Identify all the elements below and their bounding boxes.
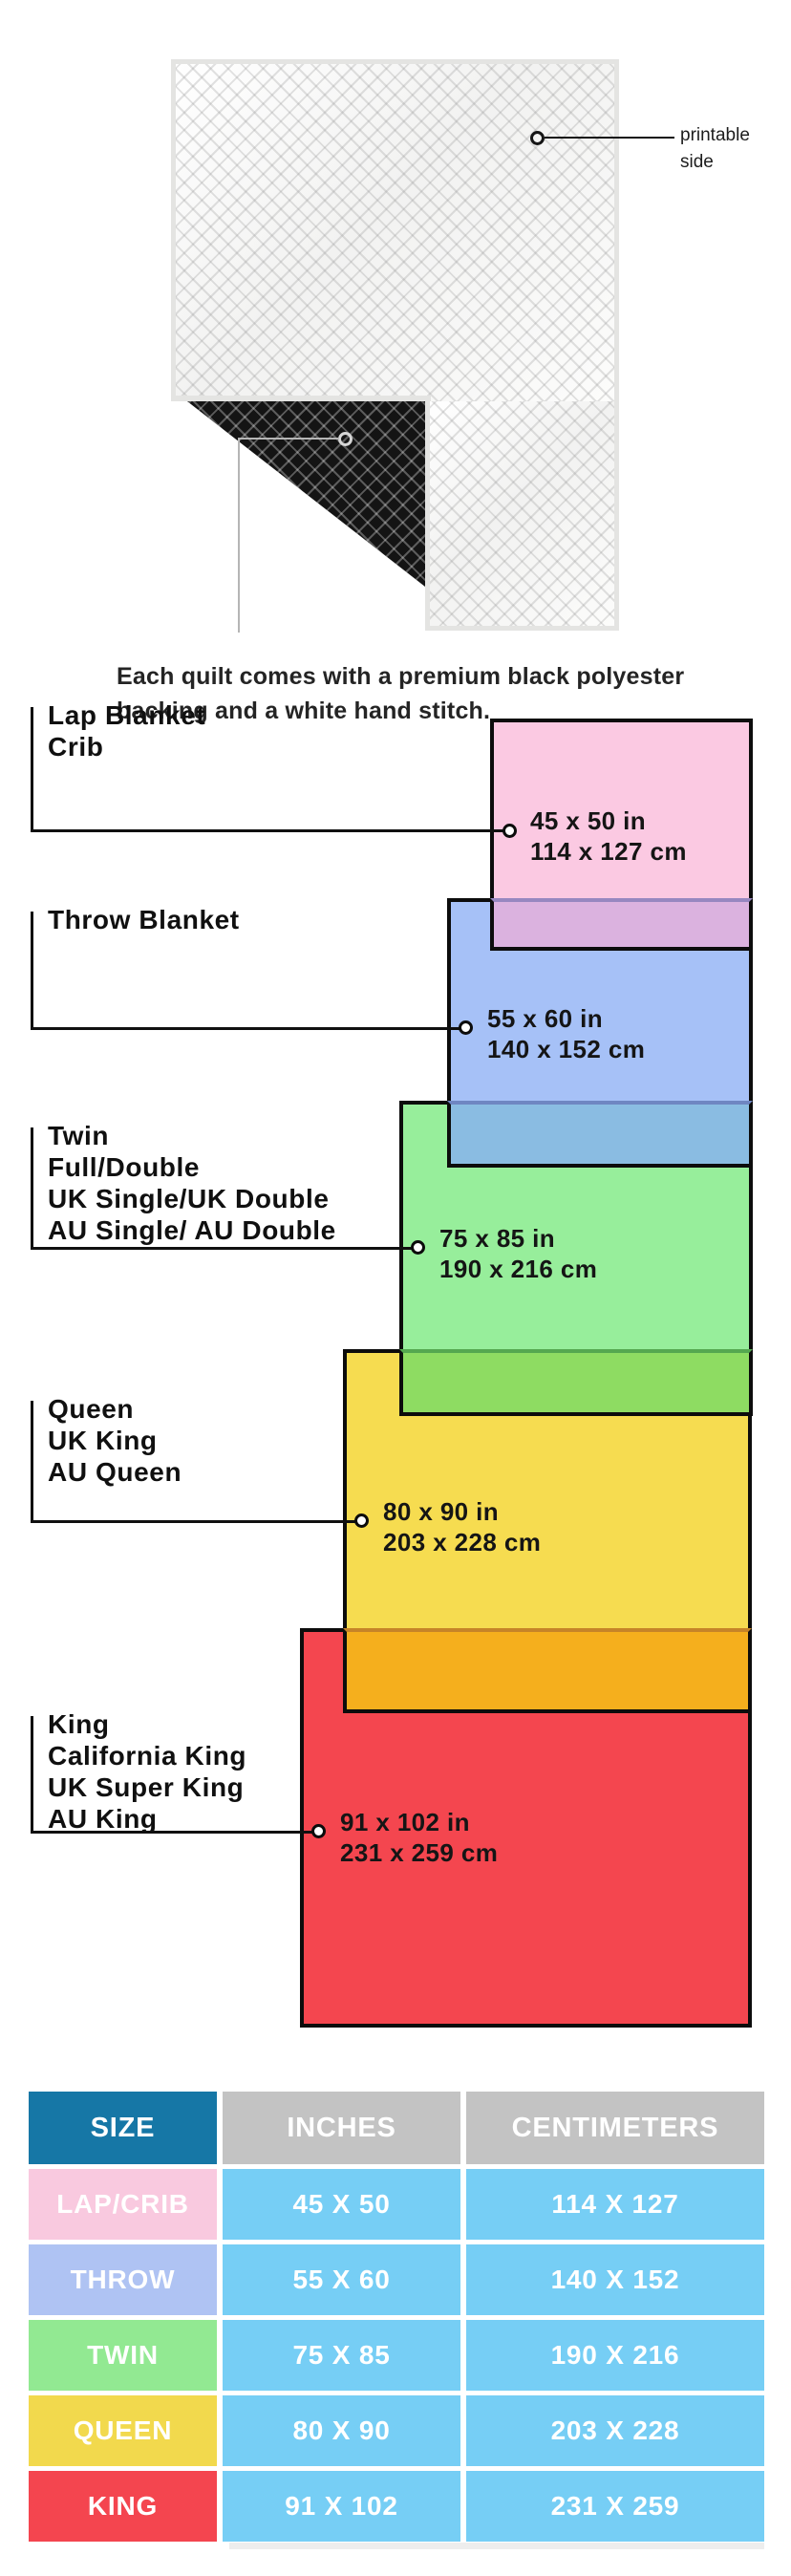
size-text-twin-in: 75 x 85 in — [439, 1223, 597, 1254]
table-row-king: KING 91 X 102 231 X 259 — [29, 2471, 764, 2542]
table-row-queen: QUEEN 80 X 90 203 X 228 — [29, 2395, 764, 2466]
printable-side-callout-line — [545, 137, 674, 139]
table-cell-cm: 114 X 127 — [466, 2169, 764, 2240]
table-cell-inches: 80 X 90 — [223, 2395, 460, 2466]
label-throw-line1: Throw Blanket — [48, 904, 240, 935]
table-cell-size: KING — [29, 2471, 217, 2542]
table-cell-size: QUEEN — [29, 2395, 217, 2466]
overlap-throw-twin — [447, 1101, 753, 1168]
size-text-twin-cm: 190 x 216 cm — [439, 1254, 597, 1284]
printable-side-marker-icon — [530, 131, 545, 145]
table-header-size: SIZE — [29, 2092, 217, 2164]
backing-caption-line1: Each quilt comes with a premium black po… — [117, 659, 684, 694]
size-text-throw-cm: 140 x 152 cm — [487, 1034, 645, 1064]
table-cell-size: THROW — [29, 2244, 217, 2315]
size-text-queen: 80 x 90 in 203 x 228 cm — [383, 1496, 541, 1557]
guide-line-king-h — [31, 1831, 313, 1834]
overlap-twin-queen — [399, 1349, 753, 1416]
table-header-inches: INCHES — [223, 2092, 460, 2164]
size-text-king-in: 91 x 102 in — [340, 1807, 498, 1837]
size-text-queen-cm: 203 x 228 cm — [383, 1527, 541, 1557]
quilt-printable-side-fabric — [171, 59, 619, 401]
label-king-line2: California King — [48, 1740, 246, 1771]
size-text-lap-cm: 114 x 127 cm — [530, 836, 687, 867]
label-queen-line3: AU Queen — [48, 1456, 182, 1488]
label-king-line3: UK Super King — [48, 1771, 246, 1803]
label-king-line1: King — [48, 1708, 246, 1740]
printable-side-label: printable side — [680, 122, 750, 176]
guide-line-throw-v — [31, 912, 33, 1030]
table-cell-cm: 140 X 152 — [466, 2244, 764, 2315]
table-row-lap-crib: LAP/CRIB 45 X 50 114 X 127 — [29, 2169, 764, 2240]
table-header-row: SIZE INCHES CENTIMETERS — [29, 2092, 764, 2164]
table-header-centimeters: CENTIMETERS — [466, 2092, 764, 2164]
label-twin-line3: UK Single/UK Double — [48, 1183, 336, 1214]
guide-line-throw-h — [31, 1027, 460, 1030]
label-twin-line2: Full/Double — [48, 1151, 336, 1183]
printable-side-label-line2: side — [680, 149, 750, 176]
label-lap-crib: Lap Blanket Crib — [48, 699, 205, 762]
guide-dot-king — [311, 1824, 326, 1838]
label-twin: Twin Full/Double UK Single/UK Double AU … — [48, 1120, 336, 1246]
size-text-lap: 45 x 50 in 114 x 127 cm — [530, 805, 687, 867]
label-lap-line1: Lap Blanket — [48, 699, 205, 731]
guide-dot-queen — [354, 1513, 369, 1528]
black-backing-marker-icon — [338, 432, 353, 446]
label-king: King California King UK Super King AU Ki… — [48, 1708, 246, 1835]
printable-side-label-line1: printable — [680, 122, 750, 149]
table-cell-cm: 231 X 259 — [466, 2471, 764, 2542]
guide-line-lap-h — [31, 829, 503, 832]
table-cell-size: TWIN — [29, 2320, 217, 2391]
table-cell-cm: 203 X 228 — [466, 2395, 764, 2466]
table-cell-inches: 55 X 60 — [223, 2244, 460, 2315]
quilt-printable-side-strip — [425, 401, 619, 631]
quilt-binding-edge — [171, 396, 431, 401]
quilt-black-backing-fabric — [187, 401, 425, 587]
black-backing-callout-line-v — [238, 438, 240, 633]
table-row-throw: THROW 55 X 60 140 X 152 — [29, 2244, 764, 2315]
table-cell-cm: 190 X 216 — [466, 2320, 764, 2391]
label-throw: Throw Blanket — [48, 904, 240, 935]
size-text-twin: 75 x 85 in 190 x 216 cm — [439, 1223, 597, 1284]
label-twin-line4: AU Single/ AU Double — [48, 1214, 336, 1246]
guide-line-queen-h — [31, 1520, 356, 1523]
guide-line-queen-v — [31, 1401, 33, 1523]
guide-line-lap-v — [31, 707, 33, 832]
guide-line-twin-h — [31, 1247, 413, 1250]
table-cell-inches: 45 X 50 — [223, 2169, 460, 2240]
size-text-king: 91 x 102 in 231 x 259 cm — [340, 1807, 498, 1868]
table-cell-size: LAP/CRIB — [29, 2169, 217, 2240]
label-queen-line2: UK King — [48, 1425, 182, 1456]
size-text-throw-in: 55 x 60 in — [487, 1003, 645, 1034]
size-text-throw: 55 x 60 in 140 x 152 cm — [487, 1003, 645, 1064]
table-cell-inches: 91 X 102 — [223, 2471, 460, 2542]
guide-dot-twin — [411, 1240, 425, 1255]
guide-line-king-v — [31, 1716, 33, 1834]
overlap-lap-throw — [490, 898, 753, 951]
label-twin-line1: Twin — [48, 1120, 336, 1151]
overlap-queen-king — [343, 1628, 752, 1713]
guide-dot-lap — [502, 824, 517, 838]
quilt-size-infographic: printable side Each quilt comes with a p… — [0, 0, 791, 2576]
black-backing-callout-line-h — [239, 438, 339, 440]
size-text-queen-in: 80 x 90 in — [383, 1496, 541, 1527]
size-text-king-cm: 231 x 259 cm — [340, 1837, 498, 1868]
table-cell-inches: 75 X 85 — [223, 2320, 460, 2391]
label-queen-line1: Queen — [48, 1393, 182, 1425]
table-row-twin: TWIN 75 X 85 190 X 216 — [29, 2320, 764, 2391]
guide-dot-throw — [459, 1020, 473, 1035]
size-text-lap-in: 45 x 50 in — [530, 805, 687, 836]
label-lap-line2: Crib — [48, 731, 205, 762]
size-table: SIZE INCHES CENTIMETERS LAP/CRIB 45 X 50… — [29, 2092, 764, 2546]
guide-line-twin-v — [31, 1127, 33, 1250]
label-queen: Queen UK King AU Queen — [48, 1393, 182, 1488]
